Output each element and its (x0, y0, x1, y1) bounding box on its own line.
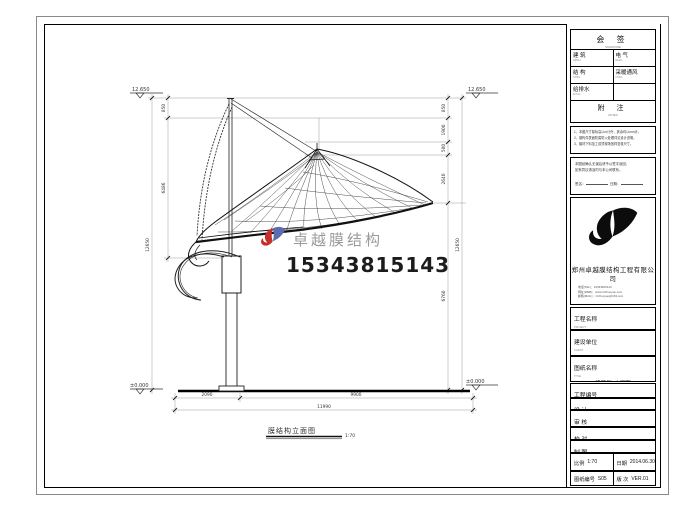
backstay-cables (197, 104, 232, 240)
mast (227, 99, 234, 257)
drawing-sheet: 12.650 12.650 ±0.000 ±0.000 850 6486 126… (0, 0, 690, 510)
sig-hvac-sub: HVAC (616, 76, 654, 79)
drawing-title-sub: TITLE (571, 375, 655, 378)
membrane-edges (189, 143, 433, 266)
signature-row: 建 筑ARCH. 电 气ELEC. (571, 49, 655, 66)
elevation-markers (130, 93, 498, 394)
signature-subtitle: SIGNATURE (575, 45, 651, 49)
dim-right-5: 6760 (441, 290, 447, 301)
drawing-caption: 膜结构立面图 (268, 426, 316, 435)
signature-box: 会 签 SIGNATURE 建 筑ARCH. 电 气ELEC. 结 构STRU.… (570, 29, 656, 123)
drafter-box: 制 图DRAWER (570, 440, 656, 453)
scale-label: 比例 (574, 461, 584, 467)
client-label: 建设单位 (571, 338, 597, 346)
sig-elec-label: 电 气 (616, 51, 654, 59)
version-label: 版 次 (617, 477, 629, 483)
elev-top-left-label: 12.650 (132, 87, 150, 93)
company-name: 郑州卓越膜结构工程有限公司 (571, 265, 655, 283)
checker-box: 审 核CHECKER (570, 410, 656, 427)
company-mail: 邮箱(MAIL)：zzzhuoyue@163.com (578, 294, 655, 299)
project-label: 工程名称 (571, 315, 597, 323)
sig-elec-sub: ELEC. (616, 59, 654, 62)
note-line: 1、本图尺寸除标高以m计外，其余均以mm计。 (574, 130, 652, 136)
dim-right-3: 500 (441, 144, 447, 152)
project-no-box: 工程编号PROJECT No. (570, 383, 656, 398)
dwgno-version-box: 图纸编号DWG No.S05 版 次VERSIONVER.01 (570, 471, 656, 486)
date-value: 2014.06.30 (630, 459, 655, 465)
company-box: 郑州卓越膜结构工程有限公司 电话(TEL)：15343815143 网址(WEB… (570, 197, 656, 305)
date-label: 日期： (610, 182, 621, 186)
approval-box: 本图经确认无误后请予以签字返回， 如有异议请及时与本公司联系。 签名： 日期： (570, 157, 656, 195)
elev-top-right-label: 12.650 (468, 87, 486, 93)
client-sub: CLIENT (571, 349, 655, 352)
notes-header: 附 注 NOTES (571, 100, 655, 117)
elev-bottom-left-label: ±0.000 (130, 383, 149, 389)
note-line: 3、膜材下料加工前须现场放样复核尺寸。 (574, 142, 652, 148)
project-name-box: 工程名称PROJECT 客运站长途区膜结构站台 (570, 307, 656, 330)
column (219, 256, 244, 391)
extension-lines (148, 94, 477, 414)
sig-plumb-label: 给排水 (573, 85, 611, 93)
dim-bottom-total: 11990 (317, 404, 331, 410)
drawing-title-label: 图纸名称 (571, 364, 597, 372)
scale-value: 1:70 (587, 459, 597, 465)
scale-date-box: 比例SCALE1:70 日期DATE2014.06.30 (570, 453, 656, 471)
signature-row: 结 构STRU. 采暖通风HVAC (571, 66, 655, 83)
dim-right-2: 1900 (441, 124, 447, 135)
elev-bottom-right-label: ±0.000 (466, 379, 485, 385)
notes-box: 1、本图尺寸除标高以m计外，其余均以mm计。 2、钢构件表面防腐防火处理详见设计… (570, 126, 656, 154)
dim-right-1: 850 (441, 104, 447, 112)
elevation-drawing: 12.650 12.650 ±0.000 ±0.000 850 6486 126… (44, 24, 566, 487)
proofer-box: 校 对PROOFER (570, 427, 656, 440)
sig-stru-label: 结 构 (573, 68, 611, 76)
signature-title: 会 签 (571, 30, 655, 45)
drawing-title-value: 建筑侧2立面图 (571, 379, 655, 382)
sig-arch-sub: ARCH. (573, 59, 611, 62)
dim-right-4: 2640 (441, 173, 447, 184)
notes-title: 附 注 (571, 101, 655, 113)
signature-row: 给排水W.S.D. (571, 83, 655, 100)
sig-stru-sub: STRU. (573, 76, 611, 79)
dwgno-value: S05 (598, 476, 607, 482)
dim-left-2: 6486 (161, 182, 167, 193)
dim-right-total: 12650 (455, 238, 461, 252)
caption-scale: 1:70 (345, 433, 355, 439)
company-logo-icon (584, 206, 642, 258)
title-block: 会 签 SIGNATURE 建 筑ARCH. 电 气ELEC. 结 构STRU.… (566, 24, 660, 487)
dim-bottom-1: 2090 (202, 392, 213, 398)
membrane-wireframe (215, 152, 428, 234)
designer-box: 设 计DESIGNER (570, 398, 656, 410)
forestay-cables (231, 99, 316, 158)
dim-bottom-2: 9900 (351, 392, 362, 398)
project-sub: PROJECT (571, 326, 655, 329)
sig-arch-label: 建 筑 (573, 51, 611, 59)
signature-header: 会 签 SIGNATURE (571, 30, 655, 49)
checker-label: 审 核 (571, 418, 587, 426)
notes-subtitle: NOTES (575, 113, 651, 117)
project-no-label: 工程编号 (571, 391, 597, 398)
sign-label: 签名： (575, 182, 586, 186)
client-box: 建设单位CLIENT (570, 330, 656, 356)
dwgno-label: 图纸编号 (574, 477, 595, 483)
version-value: VER.01 (631, 476, 648, 482)
dim-left-total: 12650 (145, 238, 151, 252)
date-field-label: 日期 (617, 461, 627, 467)
drawing-title-box: 图纸名称TITLE 建筑侧2立面图 (570, 356, 656, 382)
sig-hvac-label: 采暖通风 (616, 68, 654, 76)
sig-plumb-sub: W.S.D. (573, 93, 611, 96)
dim-left-1: 850 (161, 104, 167, 112)
